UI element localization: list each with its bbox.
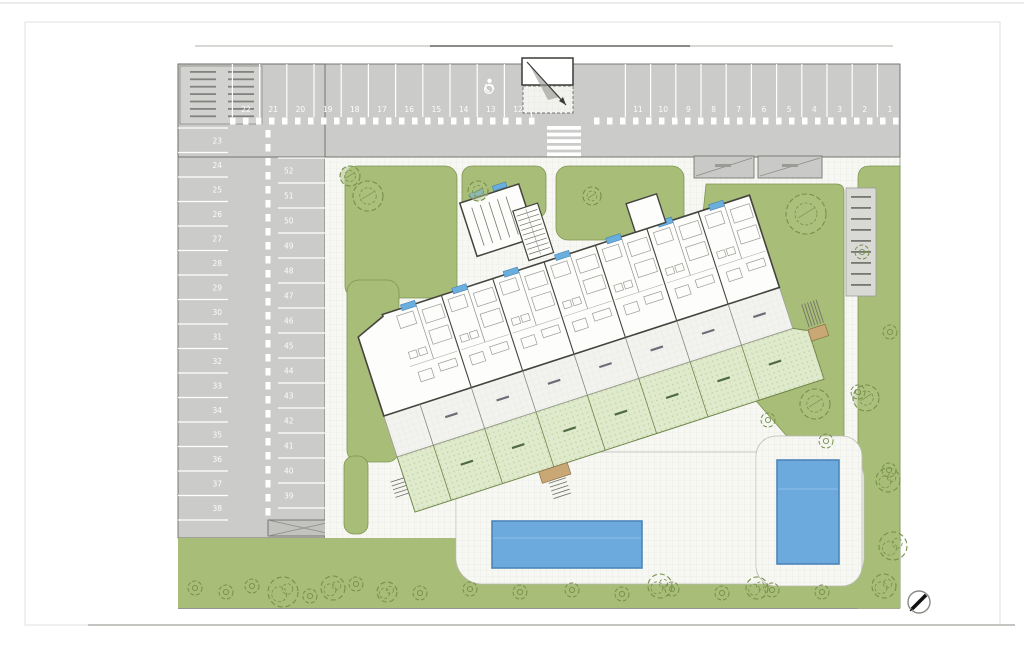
parking-space-number: 21 bbox=[268, 105, 278, 114]
pool-main bbox=[492, 521, 642, 568]
parking-space-number: 29 bbox=[212, 283, 222, 292]
parking-space-number: 5 bbox=[787, 105, 792, 114]
parking-space-number: 32 bbox=[212, 357, 222, 366]
parking-tick bbox=[269, 118, 275, 125]
road-dash bbox=[266, 144, 271, 152]
parking-space-number: 11 bbox=[633, 105, 643, 114]
tree-icon bbox=[340, 166, 360, 186]
parking-tick bbox=[490, 118, 496, 125]
parking-tick bbox=[321, 118, 327, 125]
crosswalk-stripe bbox=[547, 139, 581, 143]
parking-tick bbox=[750, 118, 756, 125]
parking-tick bbox=[802, 118, 808, 125]
parking-tick bbox=[386, 118, 392, 125]
road-dash bbox=[266, 298, 271, 306]
tree-icon bbox=[853, 385, 879, 411]
parking-space-number: 52 bbox=[284, 167, 294, 176]
driveway-ramps bbox=[694, 156, 822, 178]
bike-rack-bar bbox=[851, 196, 871, 198]
bike-rack-bar bbox=[851, 262, 871, 264]
crosswalk-stripe bbox=[547, 126, 581, 130]
bike-rack-bar bbox=[851, 207, 871, 209]
bike-rack-bar bbox=[851, 240, 871, 242]
parking-space-number: 42 bbox=[284, 417, 294, 426]
parking-space-number: 49 bbox=[284, 242, 294, 251]
legend-text-row bbox=[190, 93, 216, 95]
parking-space-number: 47 bbox=[284, 292, 294, 301]
road-dash bbox=[266, 508, 271, 516]
parking-space-number: 13 bbox=[486, 105, 496, 114]
bike-rack-bar bbox=[851, 284, 871, 286]
parking-tick bbox=[880, 118, 886, 125]
road-dash bbox=[266, 172, 271, 180]
parking-tick bbox=[529, 118, 535, 125]
parking-tick bbox=[594, 118, 600, 125]
parking-tick bbox=[763, 118, 769, 125]
parking-space-number: 15 bbox=[432, 105, 442, 114]
parking-tick bbox=[451, 118, 457, 125]
parking-space-number: 18 bbox=[350, 105, 360, 114]
pool-secondary bbox=[777, 460, 839, 564]
parking-tick bbox=[243, 118, 249, 125]
road-dash bbox=[266, 312, 271, 320]
parking-space-number: 23 bbox=[212, 136, 222, 145]
parking-tick bbox=[516, 118, 522, 125]
parking-space-number: 4 bbox=[812, 105, 817, 114]
parking-space-number: 37 bbox=[212, 479, 222, 488]
legend-text-row bbox=[190, 78, 216, 80]
parking-space-number: 17 bbox=[377, 105, 387, 114]
parking-space-number: 7 bbox=[736, 105, 741, 114]
parking-space-number: 9 bbox=[686, 105, 691, 114]
parking-space-number: 19 bbox=[323, 105, 333, 114]
parking-tick bbox=[646, 118, 652, 125]
road-dash bbox=[266, 382, 271, 390]
parking-tick bbox=[828, 118, 834, 125]
parking-space-number: 40 bbox=[284, 467, 294, 476]
parking-tick bbox=[698, 118, 704, 125]
parking-tick bbox=[256, 118, 262, 125]
lawn-island bbox=[344, 456, 368, 534]
legend-text-row bbox=[190, 108, 216, 110]
crosswalk-stripe bbox=[547, 133, 581, 137]
parking-space-number: 10 bbox=[658, 105, 668, 114]
parking-tick bbox=[360, 118, 366, 125]
tree-icon bbox=[786, 194, 826, 234]
parking-space-number: 22 bbox=[241, 105, 251, 114]
crosswalk-stripe bbox=[547, 152, 581, 156]
road-dash bbox=[266, 438, 271, 446]
legend-text-row bbox=[190, 86, 216, 88]
parking-space-number: 38 bbox=[212, 504, 222, 513]
parking-space-number: 27 bbox=[212, 234, 222, 243]
parking-tick bbox=[711, 118, 717, 125]
parking-space-number: 46 bbox=[284, 317, 294, 326]
parking-tick bbox=[672, 118, 678, 125]
road-dash bbox=[266, 158, 271, 166]
parking-space-number: 45 bbox=[284, 342, 294, 351]
road-dash bbox=[266, 340, 271, 348]
parking-space-number: 51 bbox=[284, 192, 294, 201]
road-dash bbox=[266, 494, 271, 502]
road-dash bbox=[266, 256, 271, 264]
parking-space-number: 41 bbox=[284, 442, 294, 451]
site-plan-page: 2221201918171615141312111098765432123242… bbox=[0, 0, 1024, 655]
parking-tick bbox=[412, 118, 418, 125]
parking-tick bbox=[607, 118, 613, 125]
parking-space-number: 2 bbox=[862, 105, 867, 114]
road-dash bbox=[266, 354, 271, 362]
parking-tick bbox=[789, 118, 795, 125]
parking-space-number: 8 bbox=[711, 105, 716, 114]
road-dash bbox=[266, 452, 271, 460]
bike-rack-bar bbox=[851, 229, 871, 231]
road-dash bbox=[266, 228, 271, 236]
parking-tick bbox=[737, 118, 743, 125]
parking-tick bbox=[230, 118, 236, 125]
parking-space-number: 44 bbox=[284, 367, 294, 376]
parking-tick bbox=[373, 118, 379, 125]
road-dash bbox=[266, 424, 271, 432]
road-dash bbox=[266, 270, 271, 278]
parking-tick bbox=[425, 118, 431, 125]
bike-rack bbox=[846, 188, 876, 296]
parking-tick bbox=[776, 118, 782, 125]
parking-tick bbox=[867, 118, 873, 125]
road-dash bbox=[266, 396, 271, 404]
road-dash bbox=[266, 200, 271, 208]
parking-space-number: 43 bbox=[284, 392, 294, 401]
parking-tick bbox=[295, 118, 301, 125]
parking-tick bbox=[347, 118, 353, 125]
parking-tick bbox=[334, 118, 340, 125]
garage-ramp-top bbox=[522, 58, 573, 113]
parking-space-number: 48 bbox=[284, 267, 294, 276]
bike-rack-bar bbox=[851, 273, 871, 275]
tree-icon bbox=[353, 181, 383, 211]
parking-tick bbox=[464, 118, 470, 125]
parking-tick bbox=[308, 118, 314, 125]
road-dash bbox=[266, 326, 271, 334]
parking-space-number: 16 bbox=[404, 105, 414, 114]
parking-tick bbox=[841, 118, 847, 125]
parking-space-number: 31 bbox=[212, 332, 222, 341]
parking-tick bbox=[724, 118, 730, 125]
parking-tick bbox=[438, 118, 444, 125]
parking-tick bbox=[477, 118, 483, 125]
parking-tick bbox=[282, 118, 288, 125]
legend-text-row bbox=[190, 71, 216, 73]
road-dash bbox=[266, 214, 271, 222]
parking-space-number: 35 bbox=[212, 430, 222, 439]
parking-tick bbox=[399, 118, 405, 125]
road-dash bbox=[266, 368, 271, 376]
tree-icon bbox=[800, 389, 830, 419]
parking-space-number: 33 bbox=[212, 381, 222, 390]
north-arrow-icon bbox=[908, 591, 930, 613]
parking-tick bbox=[633, 118, 639, 125]
parking-space-number: 24 bbox=[212, 161, 222, 170]
parking-space-number: 39 bbox=[284, 492, 294, 501]
parking-west-road bbox=[178, 64, 325, 538]
parking-space-number: 12 bbox=[513, 105, 523, 114]
parking-space-number: 25 bbox=[212, 185, 222, 194]
parking-space-number: 14 bbox=[459, 105, 469, 114]
road-dash bbox=[266, 242, 271, 250]
road-dash bbox=[266, 186, 271, 194]
bike-rack-bar bbox=[851, 218, 871, 220]
parking-tick bbox=[685, 118, 691, 125]
parking-space-number: 50 bbox=[284, 217, 294, 226]
road-dash bbox=[266, 284, 271, 292]
legend-text-row bbox=[190, 101, 216, 103]
parking-tick bbox=[503, 118, 509, 125]
parking-space-number: 3 bbox=[837, 105, 842, 114]
tree-icon bbox=[583, 187, 601, 205]
parking-space-number: 36 bbox=[212, 455, 222, 464]
parking-tick bbox=[659, 118, 665, 125]
road-dash bbox=[266, 466, 271, 474]
parking-tick bbox=[815, 118, 821, 125]
legend-text-row bbox=[190, 115, 216, 117]
tree-icon bbox=[468, 181, 488, 201]
road-dash bbox=[266, 480, 271, 488]
parking-tick bbox=[893, 118, 899, 125]
parking-space-number: 30 bbox=[212, 308, 222, 317]
parking-tick bbox=[854, 118, 860, 125]
parking-space-number: 28 bbox=[212, 259, 222, 268]
road-dash bbox=[266, 130, 271, 138]
parking-space-number: 20 bbox=[296, 105, 306, 114]
bike-rack-bar bbox=[851, 251, 871, 253]
site-plan-drawing: 2221201918171615141312111098765432123242… bbox=[0, 0, 1024, 655]
parking-space-number: 1 bbox=[888, 105, 893, 114]
road-dash bbox=[266, 410, 271, 418]
crosswalk-stripe bbox=[547, 146, 581, 150]
parking-space-number: 34 bbox=[212, 406, 222, 415]
parking-tick bbox=[620, 118, 626, 125]
parking-space-number: 26 bbox=[212, 210, 222, 219]
parking-space-number: 6 bbox=[762, 105, 767, 114]
